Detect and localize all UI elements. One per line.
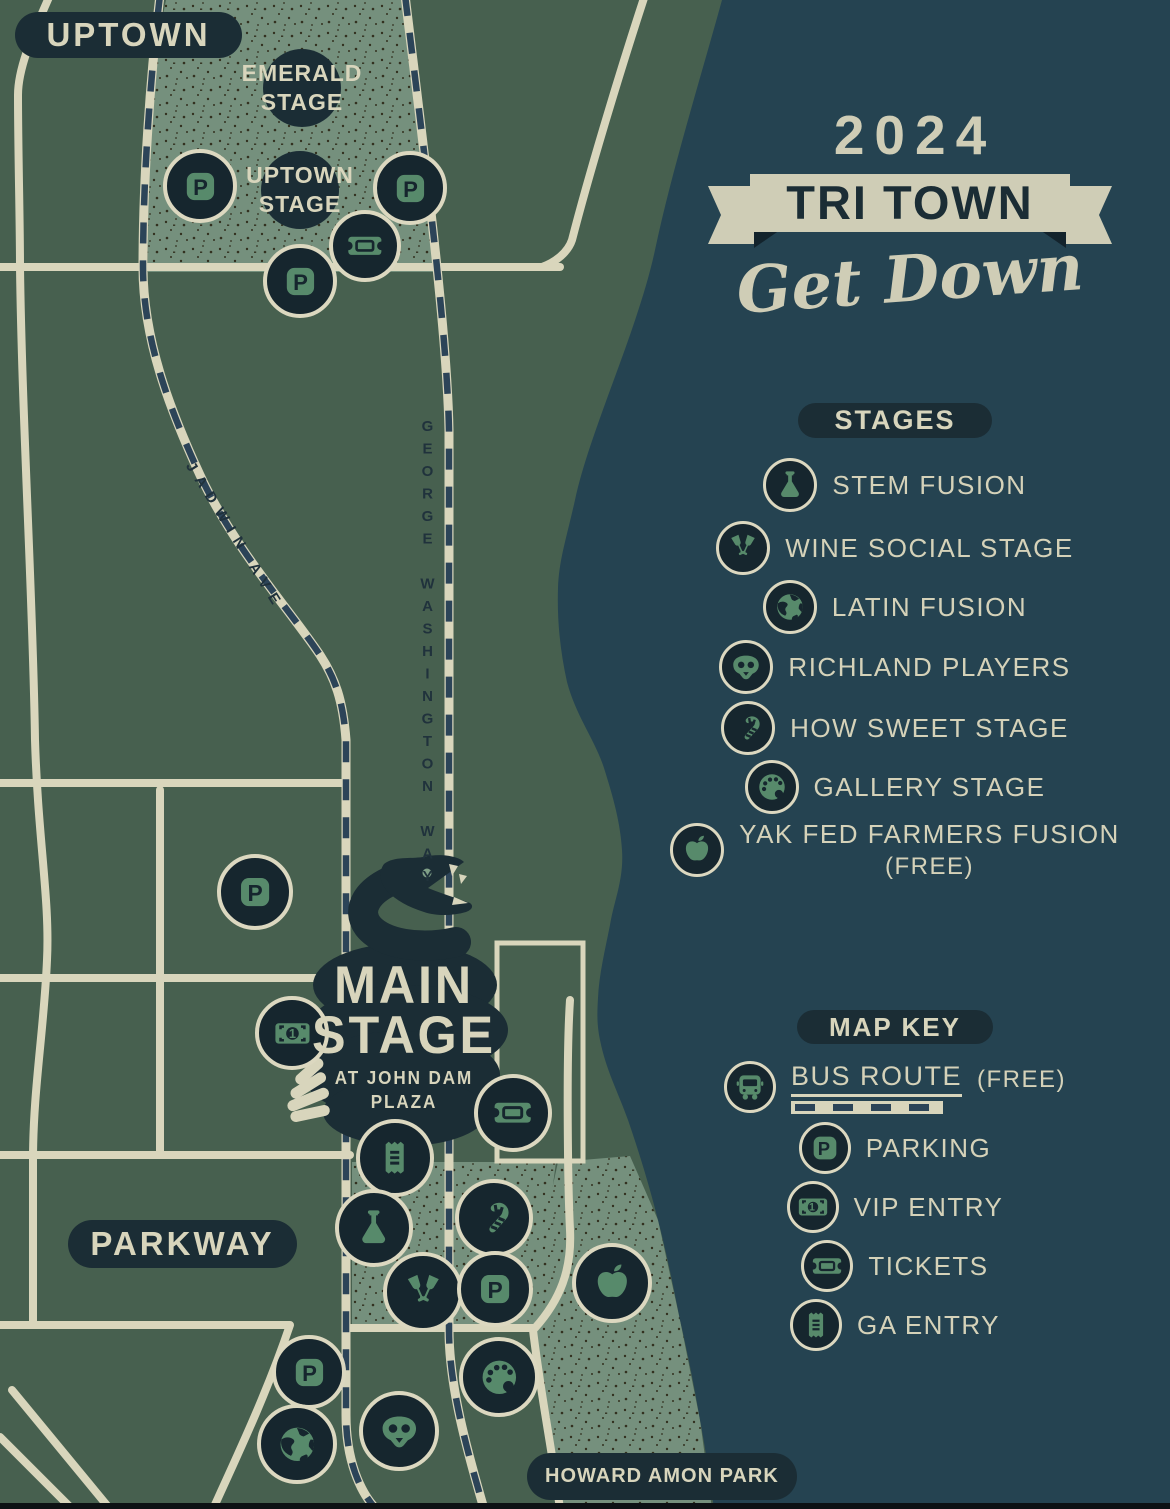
- key-label: VIP ENTRY: [854, 1192, 1004, 1223]
- key-row-bus-route: BUS ROUTE (FREE): [640, 1051, 1150, 1123]
- receipt-icon: [790, 1299, 842, 1351]
- legend-free-note: (FREE): [885, 851, 974, 882]
- district-label-howard-amon-park: HOWARD AMON PARK: [527, 1453, 797, 1500]
- stages-legend-title: STAGES: [798, 403, 992, 438]
- flask-icon: [352, 1206, 395, 1249]
- uptown-stage-label-line1: UPTOWN: [246, 161, 354, 190]
- legend-row-latin-fusion: LATIN FUSION: [640, 578, 1150, 636]
- map-marker-palette: [459, 1337, 539, 1417]
- candy-cane-icon: [472, 1196, 515, 1239]
- parking-icon: [799, 1122, 851, 1174]
- legend-label: STEM FUSION: [832, 470, 1026, 501]
- key-label: TICKETS: [868, 1251, 988, 1282]
- map-marker-candy-cane: [455, 1179, 533, 1257]
- wine-icon: [401, 1270, 446, 1315]
- bus-route-label: BUS ROUTE: [791, 1061, 962, 1097]
- map-marker-parking: [272, 1335, 346, 1409]
- key-row-vip-entry: VIP ENTRY: [640, 1178, 1150, 1236]
- key-label: PARKING: [866, 1133, 992, 1164]
- parking-icon: [234, 871, 276, 913]
- map-marker-parking: [263, 244, 337, 318]
- legend-row-gallery-stage: GALLERY STAGE: [640, 758, 1150, 816]
- main-stage-sub-line1: AT JOHN DAM: [262, 1068, 547, 1089]
- apple-icon: [670, 823, 724, 877]
- mask-icon: [377, 1409, 422, 1454]
- title-year: 2024: [660, 103, 1160, 167]
- street-label-george-washington-way: GEORGE WASHINGTON WAY: [419, 418, 436, 891]
- map-marker-globe: [257, 1404, 337, 1484]
- receipt-icon: [373, 1136, 416, 1179]
- uptown-stage-marker: UPTOWN STAGE: [261, 151, 339, 229]
- parking-icon: [289, 1352, 330, 1393]
- parking-icon: [474, 1268, 516, 1310]
- globe-icon: [275, 1422, 320, 1467]
- map-key-header: MAP KEY: [640, 1010, 1150, 1044]
- parking-icon: [180, 166, 221, 207]
- flask-icon: [763, 458, 817, 512]
- district-label-parkway: PARKWAY: [68, 1220, 297, 1268]
- poster-bottom-edge: [0, 1503, 1170, 1509]
- apple-icon: [590, 1261, 635, 1306]
- map-marker-wine: [383, 1252, 463, 1332]
- title-main: TRI TOWN: [786, 176, 1034, 229]
- legend-label: LATIN FUSION: [832, 592, 1027, 623]
- map-marker-parking: [373, 151, 447, 225]
- palette-icon: [745, 760, 799, 814]
- ticket-icon: [345, 226, 385, 266]
- emerald-stage-label-line1: EMERALD: [242, 59, 363, 88]
- legend-row-how-sweet: HOW SWEET STAGE: [640, 699, 1150, 757]
- uptown-stage-label-line2: STAGE: [259, 190, 342, 219]
- legend-row-wine-social: WINE SOCIAL STAGE: [640, 519, 1150, 577]
- main-stage-sub-line2: PLAZA: [262, 1092, 547, 1113]
- map-marker-flask: [335, 1189, 413, 1267]
- legend-label: YAK FED FARMERS FUSION: [739, 818, 1120, 852]
- candy-cane-icon: [721, 701, 775, 755]
- key-row-parking: PARKING: [640, 1119, 1150, 1177]
- emerald-stage-marker: EMERALD STAGE: [263, 49, 341, 127]
- map-marker-receipt: [356, 1119, 434, 1197]
- stages-legend-header: STAGES: [640, 403, 1150, 438]
- palette-icon: [477, 1355, 522, 1400]
- theater-mask-icon: [719, 640, 773, 694]
- legend-label: WINE SOCIAL STAGE: [785, 533, 1073, 564]
- legend-row-yak-fed: YAK FED FARMERS FUSION (FREE): [640, 812, 1150, 888]
- district-label-uptown: UPTOWN: [15, 12, 242, 58]
- map-marker-parking: [457, 1251, 533, 1327]
- map-marker-parking: [163, 149, 237, 223]
- legend-label: GALLERY STAGE: [814, 772, 1046, 803]
- legend-row-richland-players: RICHLAND PLAYERS: [640, 638, 1150, 696]
- main-stage-label-line2: STAGE: [262, 1005, 547, 1066]
- bus-icon: [724, 1061, 776, 1113]
- map-marker-mask: [359, 1391, 439, 1471]
- parking-icon: [390, 168, 431, 209]
- key-row-ga-entry: GA ENTRY: [640, 1296, 1150, 1354]
- legend-label: HOW SWEET STAGE: [790, 713, 1069, 744]
- key-label: GA ENTRY: [857, 1310, 1000, 1341]
- money-bill-icon: [787, 1181, 839, 1233]
- bus-route-free-note: (FREE): [977, 1066, 1066, 1094]
- bus-route-dash-sample: [791, 1101, 943, 1114]
- ticket-icon: [801, 1240, 853, 1292]
- festival-map-poster: P 1: [0, 0, 1170, 1509]
- map-marker-ticket: [329, 210, 401, 282]
- map-key-title: MAP KEY: [797, 1010, 993, 1044]
- globe-icon: [763, 580, 817, 634]
- legend-row-stem-fusion: STEM FUSION: [640, 456, 1150, 514]
- parking-icon: [280, 261, 321, 302]
- legend-label: RICHLAND PLAYERS: [788, 652, 1070, 683]
- key-row-tickets: TICKETS: [640, 1237, 1150, 1295]
- wine-glasses-icon: [716, 521, 770, 575]
- map-marker-parking: [217, 854, 293, 930]
- emerald-stage-label-line2: STAGE: [261, 88, 344, 117]
